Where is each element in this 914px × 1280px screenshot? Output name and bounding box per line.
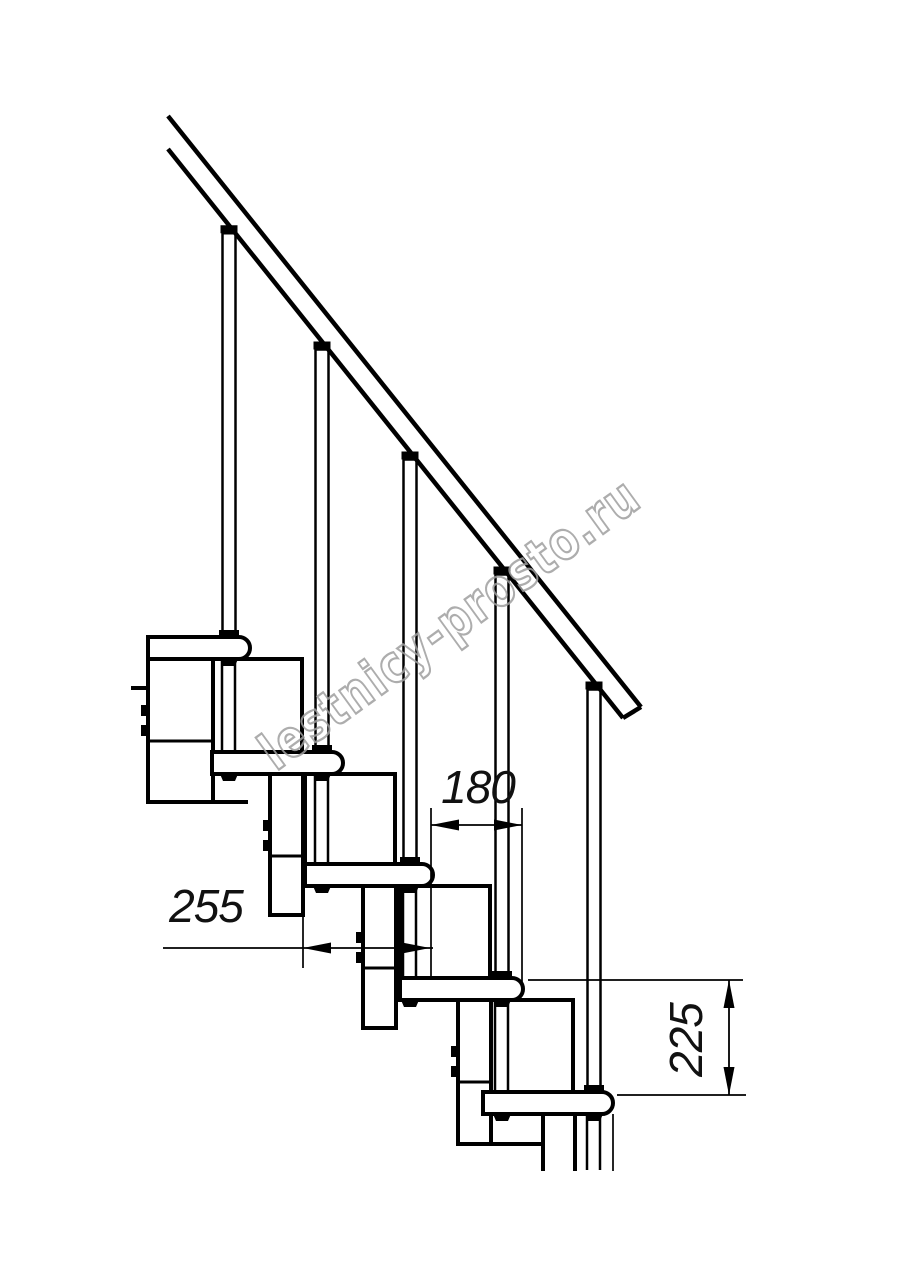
staircase-technical-drawing: 180 255 225 lestnicy-prosto.ru [0, 0, 914, 1280]
dimension-label-255: 255 [168, 880, 244, 932]
dimension-label-225: 225 [660, 1002, 712, 1078]
drawing-page: 180 255 225 lestnicy-prosto.ru [0, 0, 914, 1280]
dimension-label-180: 180 [441, 761, 516, 813]
